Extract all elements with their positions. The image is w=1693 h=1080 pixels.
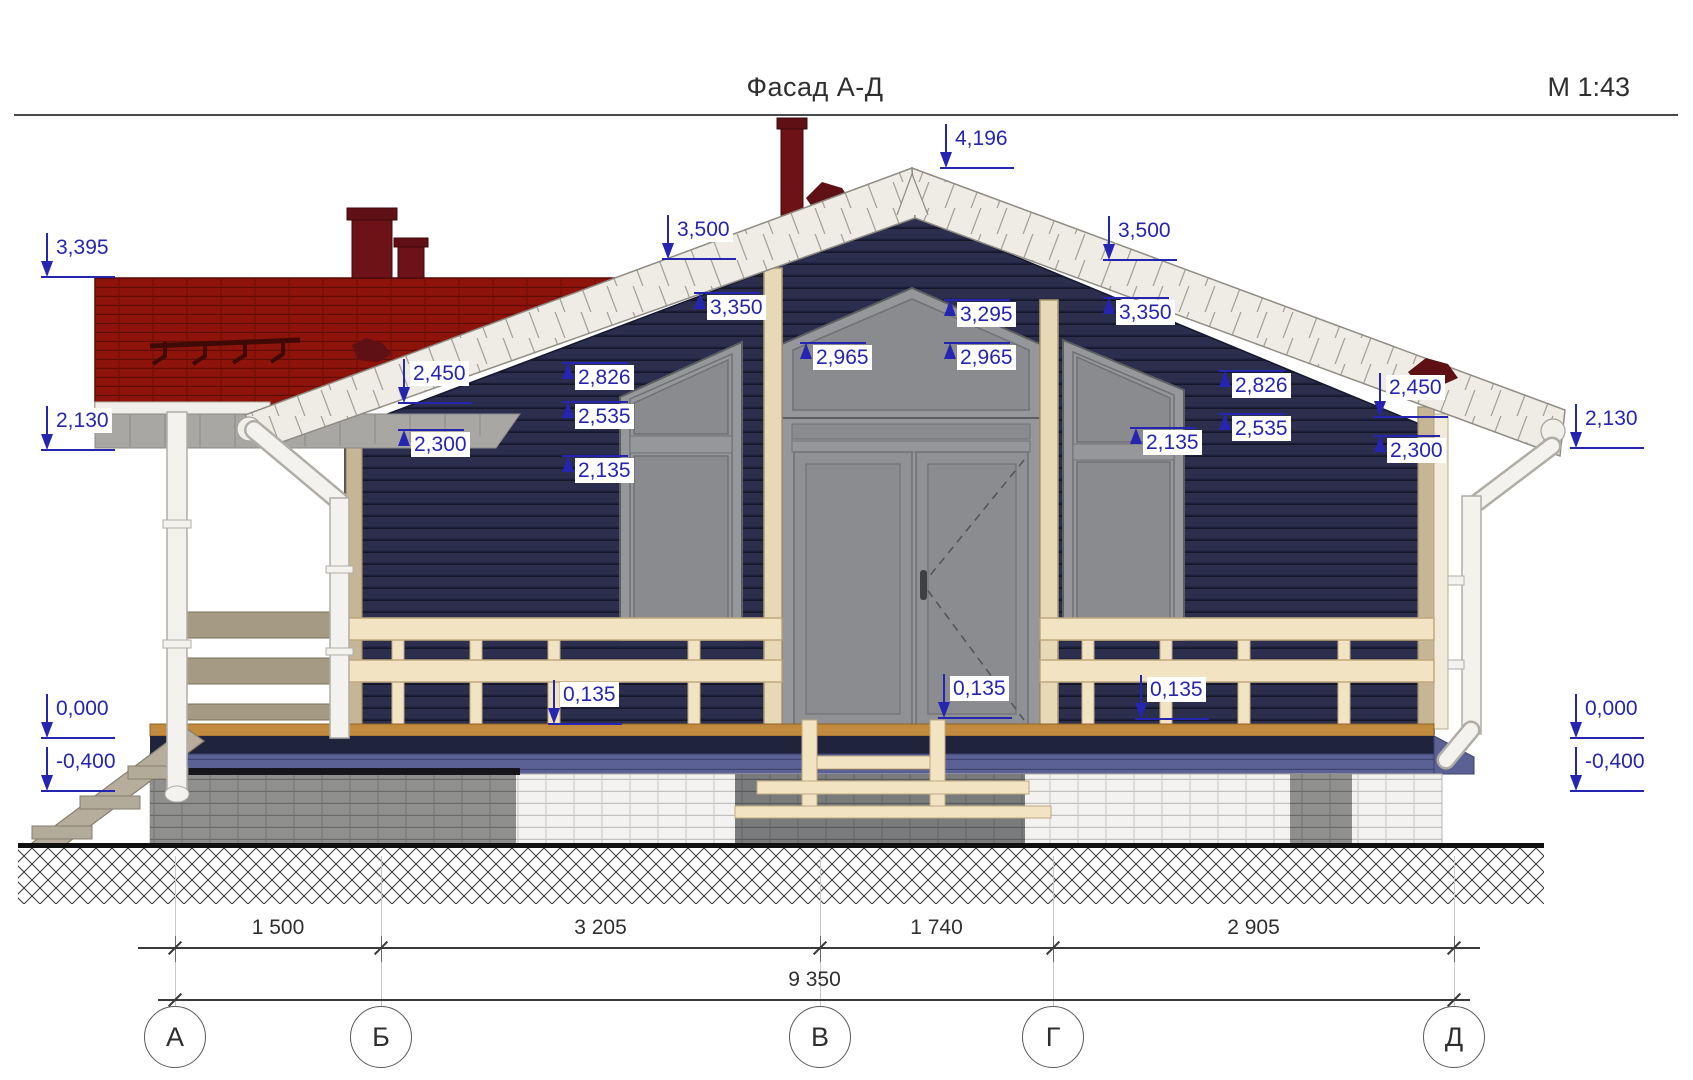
elevation-mark-value: 0,135 xyxy=(1147,677,1206,702)
elevation-mark-leader xyxy=(1379,373,1381,403)
elevation-mark-leader xyxy=(1140,675,1142,705)
downspout-right xyxy=(1446,446,1552,760)
elevation-mark-value: 2,965 xyxy=(957,345,1016,370)
elevation-mark-value: 2,826 xyxy=(1232,373,1291,398)
elevation-mark-value: 3,350 xyxy=(1116,300,1175,325)
elevation-mark-arrow-icon xyxy=(398,387,410,403)
elevation-mark-arrow-icon xyxy=(694,293,706,309)
elevation-mark-arrow-icon xyxy=(1103,244,1115,260)
elevation-mark-arrow-icon xyxy=(938,702,950,718)
elevation-mark-arrow-icon xyxy=(41,434,53,450)
elevation-mark-value: 2,130 xyxy=(53,408,112,433)
axis-witness-line xyxy=(175,856,176,1006)
elevation-mark-arrow-icon xyxy=(398,430,410,446)
elevation-mark-value: 2,965 xyxy=(813,345,872,370)
axis-bubble-2: Б xyxy=(350,1006,412,1068)
elevation-mark-value: 2,300 xyxy=(1387,438,1446,463)
elevation-mark-arrow-icon xyxy=(1374,436,1386,452)
elevation-mark-value: 3,350 xyxy=(707,295,766,320)
elevation-mark-value: 0,135 xyxy=(950,676,1009,701)
elevation-mark-value: 2,826 xyxy=(575,365,634,390)
elevation-mark-arrow-icon xyxy=(562,402,574,418)
axis-bubble-1: А xyxy=(144,1006,206,1068)
axis-bubble-3: В xyxy=(789,1006,851,1068)
elevation-mark-leader xyxy=(403,359,405,389)
elevation-mark-value: 3,295 xyxy=(957,302,1016,327)
axis-bubble-5: Д xyxy=(1423,1006,1485,1068)
elevation-mark-value: 2,535 xyxy=(1232,416,1291,441)
ground-hatch xyxy=(18,848,1544,904)
ground xyxy=(18,843,1544,904)
elevation-mark-arrow-icon xyxy=(1103,298,1115,314)
axis-bubble-4: Г xyxy=(1022,1006,1084,1068)
elevation-mark-arrow-icon xyxy=(562,363,574,379)
elevation-mark-leader xyxy=(46,694,48,724)
elevation-mark-arrow-icon xyxy=(41,261,53,277)
elevation-mark-leader xyxy=(46,233,48,263)
dimension-value: 2 905 xyxy=(1227,916,1280,940)
elevation-mark-leader xyxy=(943,674,945,704)
elevation-mark-value: 0,000 xyxy=(53,696,112,721)
elevation-mark-value: 2,535 xyxy=(575,404,634,429)
elevation-mark-arrow-icon xyxy=(562,456,574,472)
elevation-mark-arrow-icon xyxy=(800,343,812,359)
axis-witness-line xyxy=(381,856,382,1006)
elevation-mark-value: 2,135 xyxy=(575,458,634,483)
elevation-mark-value: 2,130 xyxy=(1582,406,1641,431)
downspout-left xyxy=(163,412,191,802)
elevation-mark-arrow-icon xyxy=(41,775,53,791)
porch-railing xyxy=(183,612,348,720)
elevation-mark-leader xyxy=(46,747,48,777)
elevation-mark-arrow-icon xyxy=(944,343,956,359)
elevation-mark-arrow-icon xyxy=(41,722,53,738)
elevation-mark-arrow-icon xyxy=(1219,371,1231,387)
elevation-mark-leader xyxy=(1108,216,1110,246)
elevation-mark-value: 3,395 xyxy=(53,235,112,260)
dimension-line-total xyxy=(158,999,1470,1001)
elevation-mark-arrow-icon xyxy=(1374,401,1386,417)
downspout-corner xyxy=(254,430,353,738)
elevation-mark-leader xyxy=(1575,404,1577,434)
dimension-value: 3 205 xyxy=(574,916,627,940)
elevation-mark-value: 2,450 xyxy=(1386,375,1445,400)
elevation-mark-leader xyxy=(553,680,555,710)
elevation-mark-leader xyxy=(1575,747,1577,777)
dimension-total-value: 9 350 xyxy=(788,968,841,992)
elevation-mark-arrow-icon xyxy=(1135,703,1147,719)
elevation-mark-arrow-icon xyxy=(944,300,956,316)
drawing-sheet: Фасад А-Д М 1:43 xyxy=(0,0,1693,1080)
right-window xyxy=(1063,340,1184,640)
dimension-line-row1 xyxy=(138,947,1480,949)
elevation-mark-value: -0,400 xyxy=(53,749,119,774)
elevation-mark-arrow-icon xyxy=(1570,775,1582,791)
elevation-mark-arrow-icon xyxy=(1130,428,1142,444)
elevation-mark-value: -0,400 xyxy=(1582,749,1648,774)
elevation-mark-leader xyxy=(46,406,48,436)
elevation-mark-value: 2,300 xyxy=(411,432,470,457)
door-handle xyxy=(920,570,927,600)
elevation-mark-value: 3,500 xyxy=(1115,218,1174,243)
elevation-mark-arrow-icon xyxy=(1570,432,1582,448)
elevation-mark-value: 4,196 xyxy=(952,126,1011,151)
axis-witness-line xyxy=(1053,856,1054,1006)
elevation-mark-arrow-icon xyxy=(548,708,560,724)
elevation-mark-leader xyxy=(945,124,947,154)
elevation-mark-arrow-icon xyxy=(1570,722,1582,738)
elevation-mark-value: 0,135 xyxy=(560,682,619,707)
elevation-mark-value: 0,000 xyxy=(1582,696,1641,721)
dimension-value: 1 500 xyxy=(252,916,305,940)
elevation-mark-arrow-icon xyxy=(1219,414,1231,430)
elevation-mark-value: 2,450 xyxy=(410,361,469,386)
axis-witness-line xyxy=(1454,856,1455,1006)
elevation-mark-leader xyxy=(667,215,669,245)
elevation-mark-value: 2,135 xyxy=(1143,430,1202,455)
elevation-mark-arrow-icon xyxy=(662,243,674,259)
dimension-value: 1 740 xyxy=(910,916,963,940)
elevation-mark-leader xyxy=(1575,694,1577,724)
elevation-mark-value: 3,500 xyxy=(674,217,733,242)
elevation-mark-arrow-icon xyxy=(940,152,952,168)
